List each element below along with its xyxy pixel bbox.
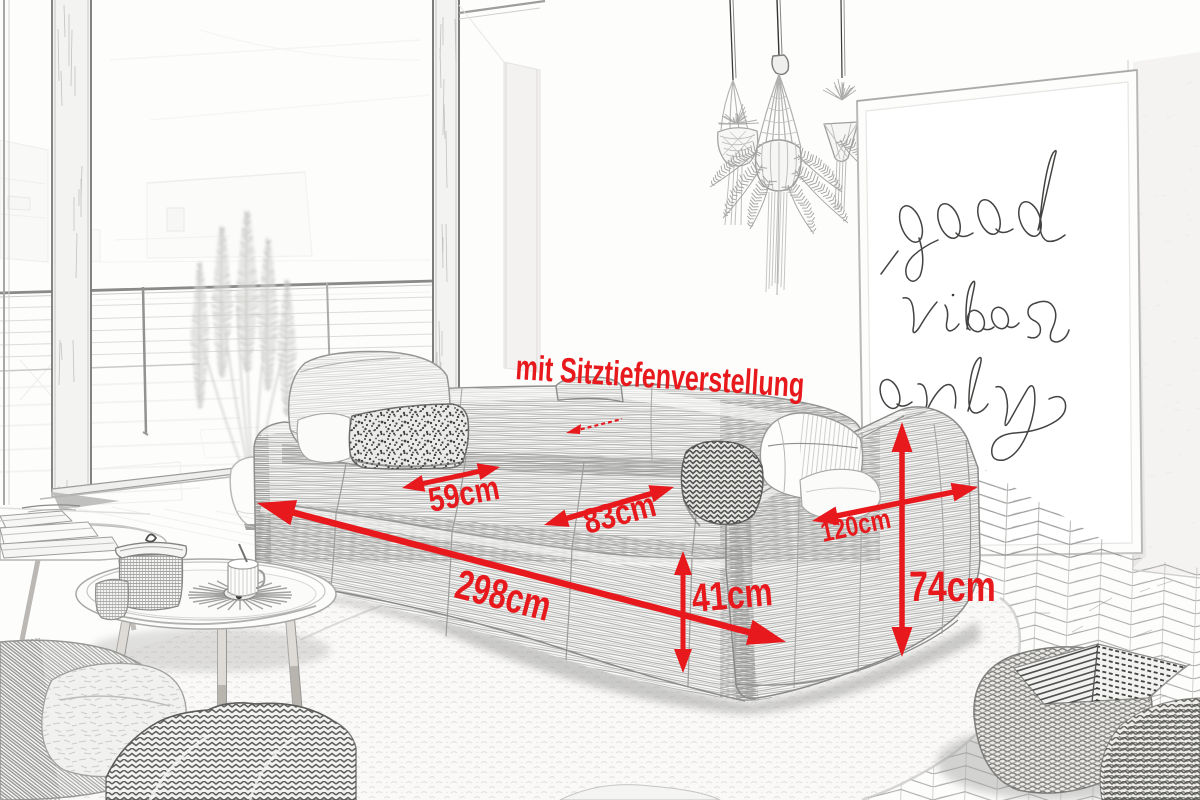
svg-text:41cm: 41cm	[690, 568, 774, 620]
svg-text:74cm: 74cm	[909, 563, 996, 611]
